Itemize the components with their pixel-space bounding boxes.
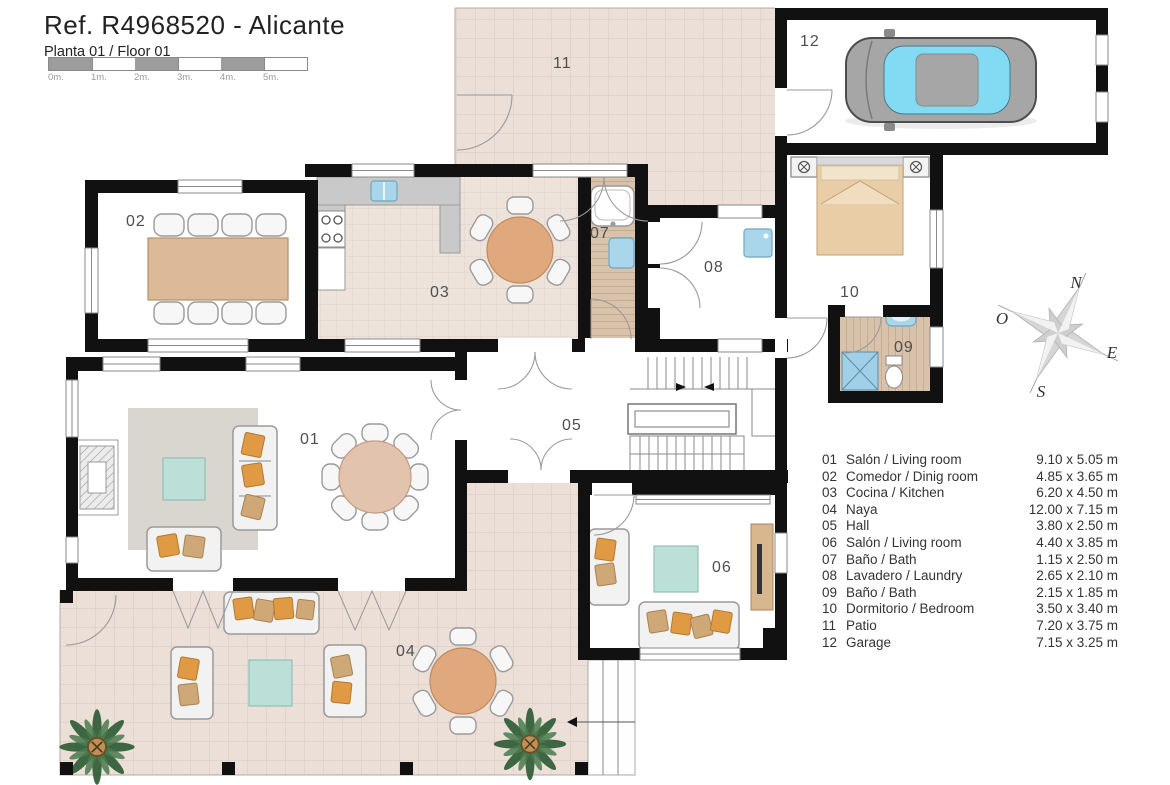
legend-room-dimensions: 7.15 x 3.25 m <box>1036 635 1118 652</box>
legend-row: 12Garage7.15 x 3.25 m <box>822 635 1118 652</box>
legend-room-dimensions: 6.20 x 4.50 m <box>1036 485 1118 502</box>
pillow <box>178 683 199 706</box>
legend-room-name: Garage <box>846 635 891 652</box>
compass-north-label: N <box>1069 273 1083 292</box>
legend-room-name: Patio <box>846 618 877 635</box>
pillow <box>253 599 275 623</box>
laundry-08 <box>744 229 772 257</box>
chair-icon <box>222 302 252 324</box>
legend-room-dimensions: 12.00 x 7.15 m <box>1029 502 1118 519</box>
car-mirror <box>884 29 895 37</box>
pillow <box>296 599 315 620</box>
pillow <box>710 610 732 634</box>
legend-room-number: 11 <box>822 618 844 635</box>
legend-room-number: 08 <box>822 568 844 585</box>
entry-floor <box>648 164 775 205</box>
staircase <box>628 357 775 472</box>
legend-room-number: 05 <box>822 518 844 535</box>
fireplace-hearth <box>88 462 106 493</box>
pillow <box>330 654 353 678</box>
legend-room-name: Naya <box>846 502 878 519</box>
coffee-table <box>163 458 205 500</box>
room-label-10: 10 <box>840 284 860 301</box>
legend-room-number: 02 <box>822 469 844 486</box>
compass-west-label: O <box>996 309 1008 328</box>
pillow <box>156 533 179 557</box>
room-label-03: 03 <box>430 284 450 301</box>
legend-row: 01Salón / Living room9.10 x 5.05 m <box>822 452 1118 469</box>
room-label-08: 08 <box>704 259 724 276</box>
car-roof <box>916 54 978 106</box>
legend-room-number: 12 <box>822 635 844 652</box>
legend-room-name: Salón / Living room <box>846 535 962 552</box>
patio-floor <box>455 8 775 164</box>
legend-room-name: Dormitorio / Bedroom <box>846 601 974 618</box>
pillow <box>647 610 669 634</box>
legend-room-name: Salón / Living room <box>846 452 962 469</box>
legend-room-dimensions: 9.10 x 5.05 m <box>1036 452 1118 469</box>
legend-row: 11Patio7.20 x 3.75 m <box>822 618 1118 635</box>
pillow <box>595 563 617 586</box>
steps <box>588 660 635 775</box>
tub-drain <box>611 222 616 227</box>
living-table-group <box>322 424 428 530</box>
pillow <box>183 535 206 559</box>
kitchen-counter <box>440 205 460 253</box>
bedroom-10 <box>791 157 929 255</box>
legend-room-number: 10 <box>822 601 844 618</box>
room-label-09: 09 <box>894 339 914 356</box>
lamp-icon <box>799 162 810 173</box>
legend-room-number: 07 <box>822 552 844 569</box>
chair-icon <box>188 302 218 324</box>
legend-room-number: 01 <box>822 452 844 469</box>
dining-room-02 <box>148 214 288 324</box>
bed-headboard <box>817 157 903 165</box>
legend-row: 09Baño / Bath2.15 x 1.85 m <box>822 585 1118 602</box>
stove-icon <box>318 211 345 247</box>
legend-room-dimensions: 4.85 x 3.65 m <box>1036 469 1118 486</box>
legend-row: 07Baño / Bath1.15 x 2.50 m <box>822 552 1118 569</box>
legend-room-dimensions: 1.15 x 2.50 m <box>1036 552 1118 569</box>
legend-row: 05Hall3.80 x 2.50 m <box>822 518 1118 535</box>
legend-room-name: Comedor / Dinig room <box>846 469 978 486</box>
stair-arrow-icon <box>704 383 714 391</box>
living-room-01 <box>76 408 428 571</box>
legend-room-dimensions: 2.15 x 1.85 m <box>1036 585 1118 602</box>
room-label-12: 12 <box>800 33 820 50</box>
chair-icon <box>154 302 184 324</box>
chair-icon <box>154 214 184 236</box>
legend-room-number: 09 <box>822 585 844 602</box>
legend-room-number: 04 <box>822 502 844 519</box>
compass-rose: N E S O <box>970 245 1145 420</box>
legend-room-name: Lavadero / Laundry <box>846 568 962 585</box>
legend-room-dimensions: 2.65 x 2.10 m <box>1036 568 1118 585</box>
legend-room-dimensions: 7.20 x 3.75 m <box>1036 618 1118 635</box>
coffee-table <box>654 546 698 592</box>
chair-icon <box>222 214 252 236</box>
toilet-icon <box>886 366 903 388</box>
pillow <box>331 681 352 704</box>
pillow <box>241 463 264 488</box>
room-label-11: 11 <box>553 55 572 72</box>
legend-room-name: Hall <box>846 518 869 535</box>
pillow <box>671 612 693 635</box>
pillow <box>273 597 294 620</box>
legend-room-number: 03 <box>822 485 844 502</box>
legend-row: 03Cocina / Kitchen6.20 x 4.50 m <box>822 485 1118 502</box>
legend: 01Salón / Living room9.10 x 5.05 m 02Com… <box>822 452 1118 651</box>
living-room-06 <box>589 524 773 650</box>
floor-plan-svg: 01 02 03 04 05 06 07 08 09 10 11 12 N E … <box>0 0 1170 785</box>
pillow <box>595 538 617 561</box>
car-mirror <box>884 123 895 131</box>
room-label-06: 06 <box>712 559 732 576</box>
round-table <box>487 217 553 283</box>
palm-plant-icon <box>494 708 567 781</box>
room-label-02: 02 <box>126 213 146 230</box>
pillow <box>241 432 265 458</box>
legend-row: 10Dormitorio / Bedroom3.50 x 3.40 m <box>822 601 1118 618</box>
chair-icon <box>188 214 218 236</box>
legend-row: 06Salón / Living room4.40 x 3.85 m <box>822 535 1118 552</box>
tv-icon <box>757 544 762 594</box>
legend-room-dimensions: 3.50 x 3.40 m <box>1036 601 1118 618</box>
legend-room-name: Baño / Bath <box>846 585 917 602</box>
room-label-07: 07 <box>590 225 610 242</box>
toilet-tank <box>886 356 902 365</box>
pillow <box>177 657 199 681</box>
legend-room-dimensions: 4.40 x 3.85 m <box>1036 535 1118 552</box>
bed-pillow <box>821 166 899 180</box>
compass-east-label: E <box>1106 343 1118 362</box>
chair-icon <box>256 214 286 236</box>
washing-machine-icon <box>744 229 772 257</box>
legend-row: 04Naya12.00 x 7.15 m <box>822 502 1118 519</box>
legend-row: 02Comedor / Dinig room4.85 x 3.65 m <box>822 469 1118 486</box>
dining-table <box>148 238 288 300</box>
naya-strip-floor <box>467 483 578 603</box>
compass-south-label: S <box>1037 382 1046 401</box>
room-label-05: 05 <box>562 417 582 434</box>
kitchen-cabinet <box>318 248 345 290</box>
washer-knob <box>764 234 769 239</box>
round-table <box>339 441 411 513</box>
garage-12 <box>845 29 1037 131</box>
round-table <box>430 648 496 714</box>
coffee-table <box>249 660 292 706</box>
pillow <box>233 597 255 620</box>
legend-room-name: Cocina / Kitchen <box>846 485 944 502</box>
room-label-01: 01 <box>300 431 320 448</box>
legend-row: 08Lavadero / Laundry2.65 x 2.10 m <box>822 568 1118 585</box>
chair-icon <box>256 302 286 324</box>
stair-railing <box>628 404 736 434</box>
room-label-04: 04 <box>396 643 416 660</box>
legend-room-name: Baño / Bath <box>846 552 917 569</box>
legend-room-dimensions: 3.80 x 2.50 m <box>1036 518 1118 535</box>
legend-room-number: 06 <box>822 535 844 552</box>
floor-plan-page: Ref. R4968520 - Alicante Planta 01 / Flo… <box>0 0 1170 785</box>
washbasin-icon <box>609 238 634 268</box>
lamp-icon <box>911 162 922 173</box>
